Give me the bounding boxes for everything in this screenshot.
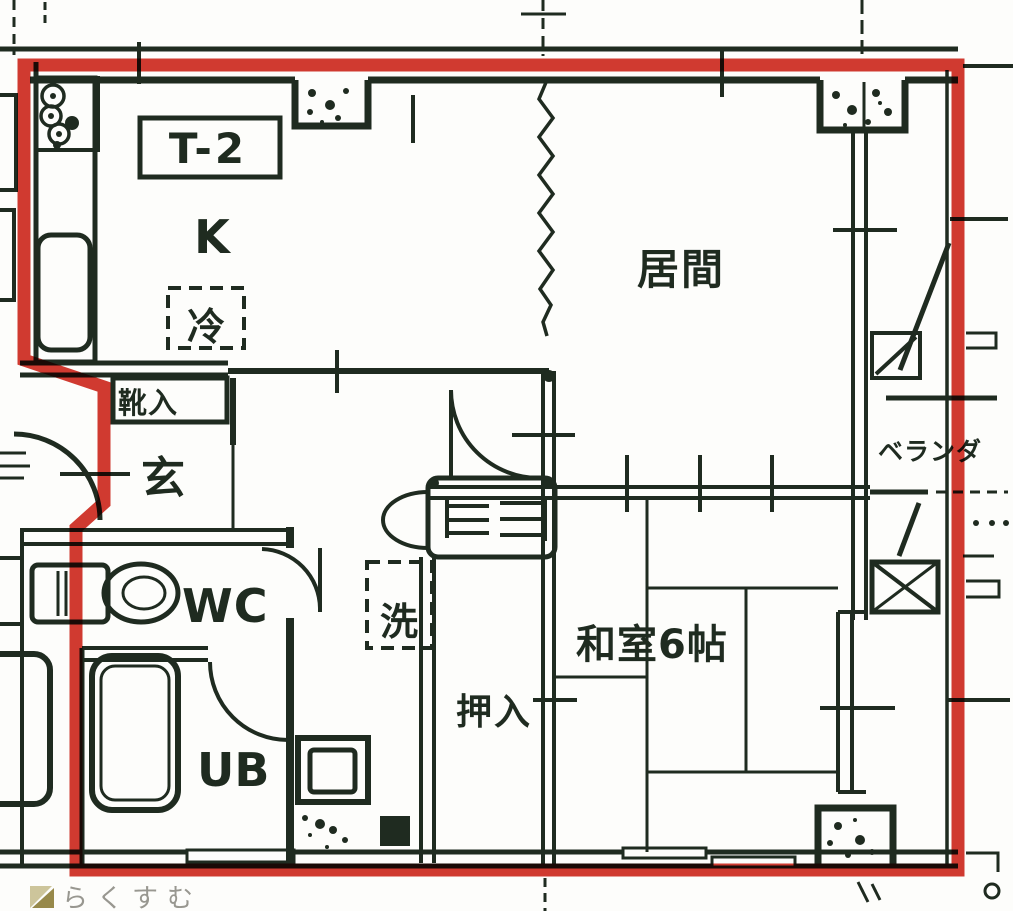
label-unit-bath: UB: [197, 743, 269, 797]
label-kitchen: K: [194, 210, 232, 264]
label-living-room: 居間: [637, 245, 725, 294]
label-refrigerator: 冷: [187, 305, 225, 349]
water-heater-box: [380, 816, 410, 846]
label-wc: WC: [182, 579, 269, 633]
watermark-text: らくすむ: [62, 884, 202, 911]
label-entrance: 玄: [141, 453, 185, 504]
floor-plan-svg: T-2 K 居間 冷 靴入 玄 WC UB 洗 押入 和室6帖 ベランダ らくす…: [0, 0, 1013, 911]
label-washing-machine: 洗: [380, 600, 418, 644]
unit-type-label: T-2: [169, 124, 247, 173]
label-shoe-cabinet: 靴入: [118, 386, 178, 420]
label-closet: 押入: [456, 692, 532, 733]
label-japanese-room: 和室6帖: [576, 622, 728, 668]
label-veranda: ベランダ: [878, 437, 982, 466]
floor-plan-page: T-2 K 居間 冷 靴入 玄 WC UB 洗 押入 和室6帖 ベランダ らくす…: [0, 0, 1013, 911]
